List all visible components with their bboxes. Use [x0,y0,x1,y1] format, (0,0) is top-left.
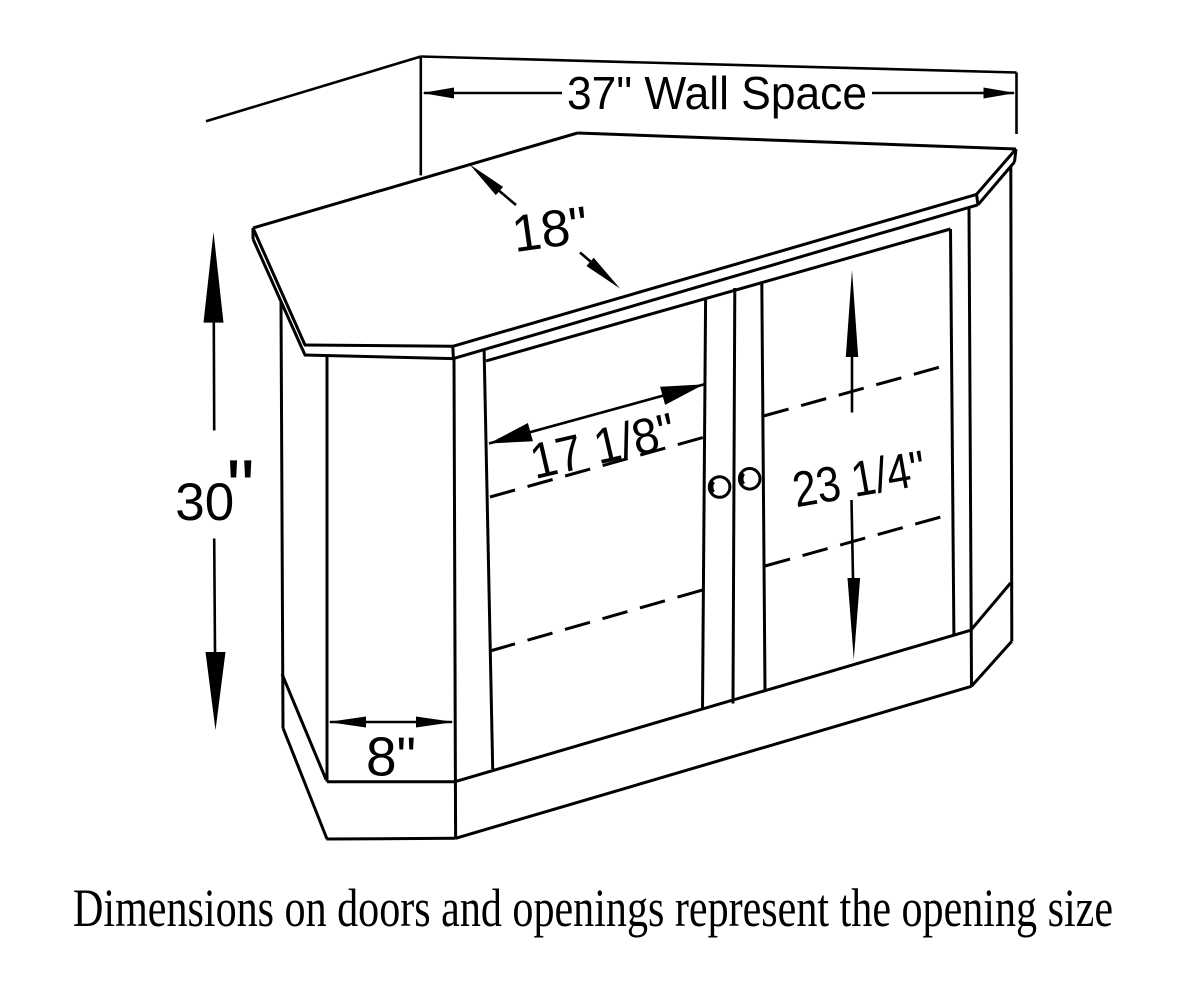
svg-text:Dimensions on doors and openin: Dimensions on doors and openings represe… [73,878,1113,938]
svg-text:": " [227,443,255,532]
svg-text:8": 8" [366,725,416,787]
svg-text:37" Wall Space: 37" Wall Space [567,67,867,119]
svg-text:30: 30 [175,473,234,532]
svg-text:18": 18" [508,196,592,264]
